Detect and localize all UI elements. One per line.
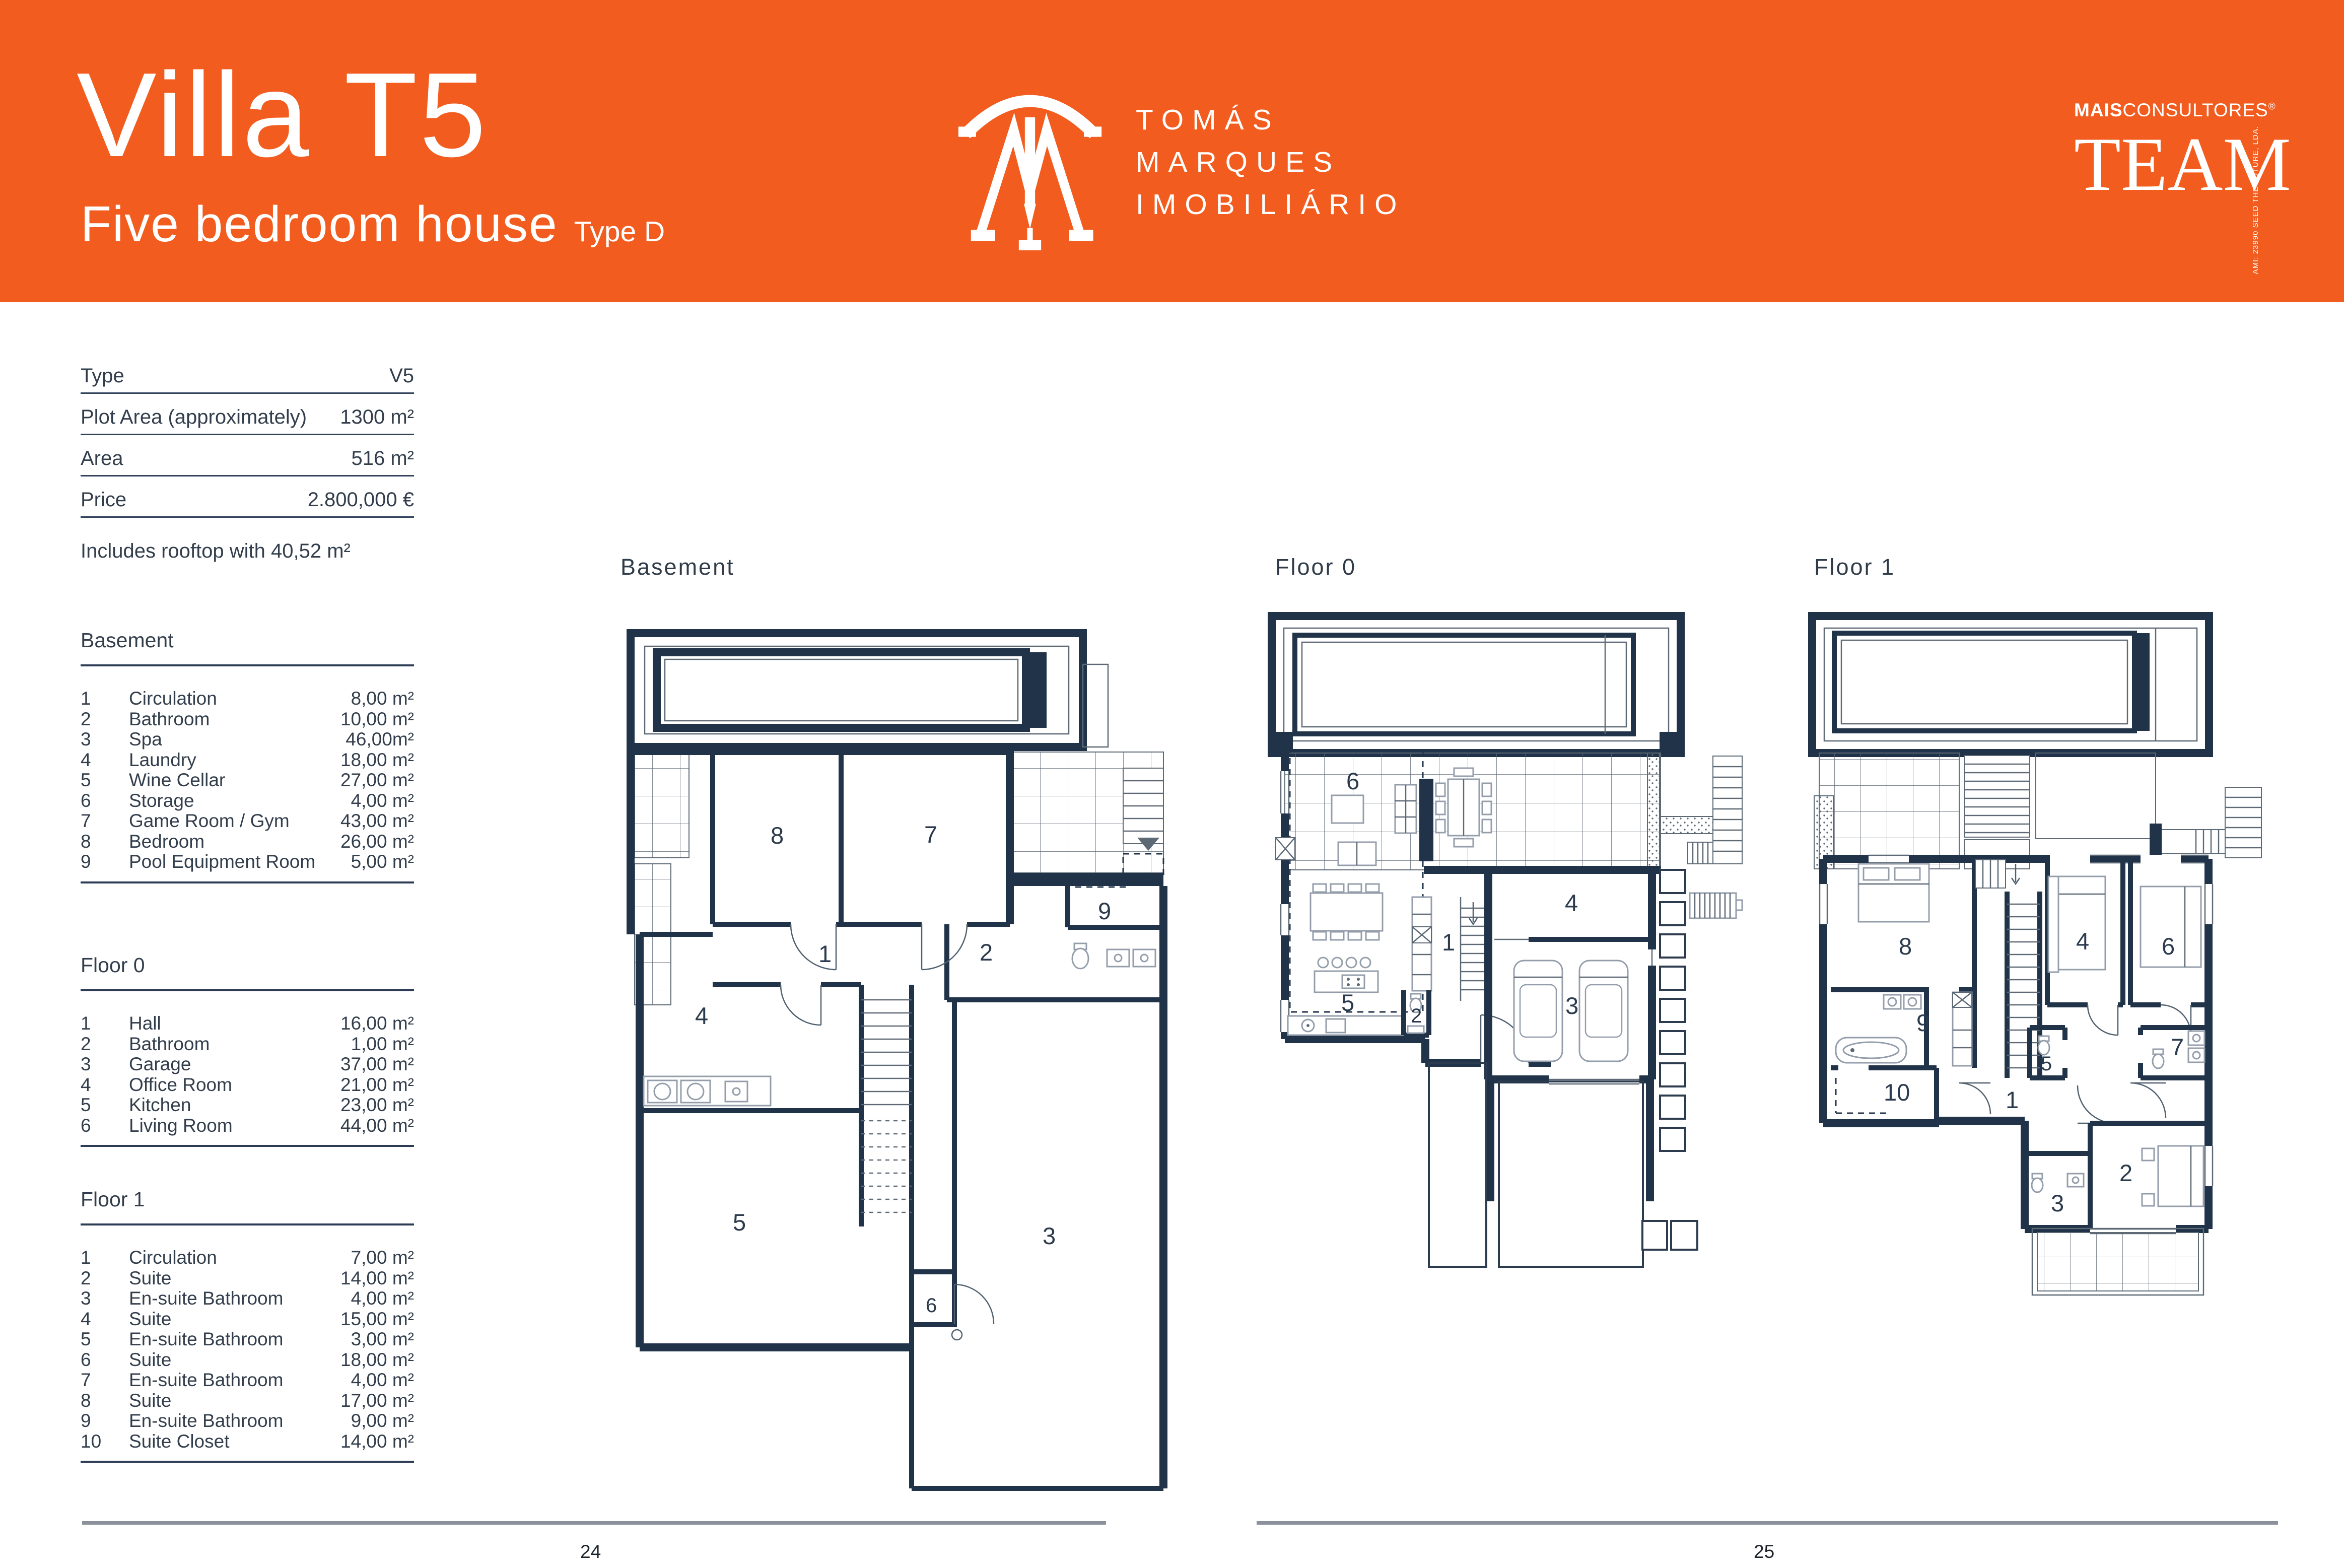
bathroom-fixtures bbox=[1072, 943, 1155, 969]
room-number: 1 bbox=[81, 1013, 129, 1034]
info-label: Type bbox=[81, 365, 124, 387]
room-row: 4Suite15,00 m² bbox=[81, 1309, 414, 1330]
room-name: En-suite Bathroom bbox=[129, 1329, 351, 1350]
floor1-room-list: Floor 1 1Circulation7,00 m² 2Suite14,00 … bbox=[81, 1188, 414, 1463]
property-info-table: Type V5 Plot Area (approximately) 1300 m… bbox=[81, 353, 414, 518]
section-title: Floor 0 bbox=[81, 953, 414, 977]
room-name: Circulation bbox=[129, 1248, 351, 1268]
room-row: 4Laundry18,00 m² bbox=[81, 750, 414, 771]
room-number: 7 bbox=[81, 1370, 129, 1391]
room-number: 7 bbox=[81, 811, 129, 832]
bathroom-3 bbox=[2025, 1153, 2090, 1192]
room-label-gameroom: 7 bbox=[924, 821, 937, 848]
room-label-bathroom: 2 bbox=[1411, 1005, 1422, 1027]
room-area: 43,00 m² bbox=[340, 811, 414, 832]
room-row: 1Circulation7,00 m² bbox=[81, 1248, 414, 1268]
room-name: Suite bbox=[129, 1309, 340, 1330]
room-label-circulation1: 1 bbox=[2006, 1086, 2019, 1113]
car bbox=[1514, 961, 1562, 1061]
pantry-column bbox=[1412, 897, 1431, 991]
room-name: Suite bbox=[129, 1350, 340, 1371]
registered-mark: ® bbox=[2268, 102, 2276, 112]
room-name: Storage bbox=[129, 791, 351, 811]
basement-plan-title: Basement bbox=[621, 554, 735, 580]
car bbox=[1579, 961, 1628, 1061]
room-row: 6Storage4,00 m² bbox=[81, 791, 414, 811]
room-name: Bathroom bbox=[129, 709, 340, 730]
room-name: Kitchen bbox=[129, 1095, 340, 1116]
room-label-storage: 6 bbox=[926, 1294, 937, 1317]
floor0-floor-plan: 6 5 2 1 4 3 bbox=[1267, 602, 1748, 1269]
room-area: 4,00 m² bbox=[351, 1370, 414, 1391]
room-area: 26,00 m² bbox=[340, 832, 414, 852]
room-area: 21,00 m² bbox=[340, 1075, 414, 1096]
brand-name: TOMÁS MARQUES IMOBILIÁRIO bbox=[1136, 75, 1405, 258]
room-name: Spa bbox=[129, 729, 346, 750]
room-number: 4 bbox=[81, 750, 129, 771]
room-label-bath7: 7 bbox=[2171, 1034, 2184, 1060]
room-number: 3 bbox=[81, 729, 129, 750]
storage-room bbox=[912, 1272, 994, 1340]
floor0-room-list: Floor 0 1Hall16,00 m² 2Bathroom1,00 m² 3… bbox=[81, 953, 414, 1147]
room-name: En-suite Bathroom bbox=[129, 1370, 351, 1391]
kitchen-counter bbox=[1288, 1016, 1404, 1035]
floor0-plan-title: Floor 0 bbox=[1275, 554, 1356, 580]
room-name: Office Room bbox=[129, 1075, 340, 1096]
room-area: 9,00 m² bbox=[351, 1411, 414, 1431]
room-label-closet10: 10 bbox=[1884, 1079, 1910, 1106]
room-name: Pool Equipment Room bbox=[129, 852, 351, 872]
room-area: 4,00 m² bbox=[351, 791, 414, 811]
room-area: 16,00 m² bbox=[340, 1013, 414, 1034]
room-name: Bedroom bbox=[129, 832, 340, 852]
roof-terrace bbox=[1814, 753, 2156, 869]
room-number: 9 bbox=[81, 1411, 129, 1431]
team-logo-bold: MAIS bbox=[2074, 100, 2123, 120]
room-label-suite4: 4 bbox=[2076, 928, 2089, 955]
wardrobe-strip bbox=[1953, 992, 1972, 1066]
room-number: 8 bbox=[81, 1391, 129, 1411]
room-name: Circulation bbox=[129, 689, 351, 709]
room-area: 5,00 m² bbox=[351, 852, 414, 872]
exterior-stairs bbox=[1661, 756, 1742, 864]
room-label-office: 4 bbox=[1565, 890, 1578, 916]
room-name: En-suite Bathroom bbox=[129, 1288, 351, 1309]
room-name: Bathroom bbox=[129, 1034, 351, 1055]
room-row: 2Bathroom10,00 m² bbox=[81, 709, 414, 730]
room-name: Suite bbox=[129, 1268, 340, 1289]
room-row: 2Suite14,00 m² bbox=[81, 1268, 414, 1289]
room-number: 3 bbox=[81, 1054, 129, 1075]
brand-logo: TOMÁS MARQUES IMOBILIÁRIO bbox=[954, 75, 1405, 258]
info-value: V5 bbox=[389, 365, 414, 387]
room-label-laundry: 4 bbox=[695, 1002, 708, 1029]
room-number: 9 bbox=[81, 852, 129, 872]
room-label-poolequipment: 9 bbox=[1098, 898, 1111, 924]
room-area: 18,00 m² bbox=[340, 1350, 414, 1371]
divider bbox=[81, 1223, 414, 1225]
exterior-stairs bbox=[2150, 787, 2261, 858]
room-area: 7,00 m² bbox=[351, 1248, 414, 1268]
room-area: 1,00 m² bbox=[351, 1034, 414, 1055]
divider bbox=[81, 664, 414, 666]
room-number: 5 bbox=[81, 770, 129, 791]
room-row: 5Kitchen23,00 m² bbox=[81, 1095, 414, 1116]
room-name: Suite Closet bbox=[129, 1431, 340, 1452]
basement-floor-plan: 8 7 9 1 2 4 5 6 3 bbox=[625, 602, 1179, 1496]
divider bbox=[81, 1461, 414, 1463]
room-label-bath3: 3 bbox=[2051, 1190, 2064, 1216]
team-logo: MAISCONSULTORES® TEAM AMI: 23990 SEED TH… bbox=[2074, 100, 2276, 202]
room-number: 2 bbox=[81, 709, 129, 730]
door-arcs bbox=[781, 924, 967, 1025]
room-name: Wine Cellar bbox=[129, 770, 340, 791]
info-label: Plot Area (approximately) bbox=[81, 406, 307, 429]
room-number: 5 bbox=[81, 1095, 129, 1116]
room-area: 15,00 m² bbox=[340, 1309, 414, 1330]
floor1-plan-title: Floor 1 bbox=[1814, 554, 1895, 580]
room-name: Suite bbox=[129, 1391, 340, 1411]
page-title: Villa T5 bbox=[77, 55, 488, 175]
section-title: Basement bbox=[81, 629, 414, 652]
room-number: 2 bbox=[81, 1034, 129, 1055]
room-label-circulation: 1 bbox=[818, 940, 832, 967]
room-label-garage: 3 bbox=[1565, 992, 1578, 1019]
pergola bbox=[1964, 756, 2030, 869]
info-label: Price bbox=[81, 489, 126, 511]
page-subtitle-row: Five bedroom house Type D bbox=[81, 195, 665, 253]
room-area: 18,00 m² bbox=[340, 750, 414, 771]
dining-table bbox=[1311, 884, 1383, 940]
pool-deck bbox=[631, 633, 1108, 747]
basement-room-list: Basement 1Circulation8,00 m² 2Bathroom10… bbox=[81, 629, 414, 883]
room-row: 2Bathroom1,00 m² bbox=[81, 1034, 414, 1055]
info-row-price: Price 2.800,000 € bbox=[81, 476, 414, 518]
room-row: 5En-suite Bathroom3,00 m² bbox=[81, 1329, 414, 1350]
room-row: 8Suite17,00 m² bbox=[81, 1391, 414, 1411]
room-name: Garage bbox=[129, 1054, 340, 1075]
room-row: 3Garage37,00 m² bbox=[81, 1054, 414, 1075]
room-name: En-suite Bathroom bbox=[129, 1411, 351, 1431]
room-area: 4,00 m² bbox=[351, 1288, 414, 1309]
pool-deck bbox=[1272, 616, 1681, 753]
room-row: 8Bedroom26,00 m² bbox=[81, 832, 414, 852]
room-area: 8,00 m² bbox=[351, 689, 414, 709]
room-row: 10Suite Closet14,00 m² bbox=[81, 1431, 414, 1452]
info-value: 1300 m² bbox=[340, 406, 414, 429]
room-label-bath5: 5 bbox=[2041, 1053, 2052, 1075]
room-number: 6 bbox=[81, 791, 129, 811]
divider bbox=[81, 881, 414, 883]
team-logo-name: TEAM bbox=[2074, 126, 2276, 202]
room-row: 1Circulation8,00 m² bbox=[81, 689, 414, 709]
room-area: 27,00 m² bbox=[340, 770, 414, 791]
room-area: 3,00 m² bbox=[351, 1329, 414, 1350]
room-label-hall: 1 bbox=[1442, 929, 1455, 956]
info-value: 516 m² bbox=[352, 447, 415, 470]
room-label-suite8: 8 bbox=[1899, 933, 1912, 960]
room-row: 7En-suite Bathroom4,00 m² bbox=[81, 1370, 414, 1391]
divider bbox=[81, 1145, 414, 1147]
room-label-bath9: 9 bbox=[1916, 1009, 1929, 1036]
room-name: Living Room bbox=[129, 1116, 340, 1136]
brand-name-line3: IMOBILIÁRIO bbox=[1136, 183, 1405, 226]
room-number: 1 bbox=[81, 689, 129, 709]
room-row: 9Pool Equipment Room5,00 m² bbox=[81, 852, 414, 872]
room-row: 6Living Room44,00 m² bbox=[81, 1116, 414, 1136]
room-label-winecellar: 5 bbox=[733, 1209, 746, 1236]
room-label-livingroom: 6 bbox=[1346, 768, 1359, 794]
room-area: 14,00 m² bbox=[340, 1431, 414, 1452]
room-label-suite2: 2 bbox=[2119, 1160, 2132, 1186]
rooftop-note: Includes rooftop with 40,52 m² bbox=[81, 540, 351, 563]
room-label-suite6: 6 bbox=[2162, 933, 2175, 960]
bottom-terrace bbox=[2032, 1229, 2203, 1295]
room-number: 1 bbox=[81, 1248, 129, 1268]
team-logo-rest: CONSULTORES bbox=[2123, 100, 2268, 120]
room-name: Laundry bbox=[129, 750, 340, 771]
room-number: 3 bbox=[81, 1288, 129, 1309]
room-area: 10,00 m² bbox=[340, 709, 414, 730]
kitchen-island bbox=[1315, 958, 1378, 992]
room-label-spa: 3 bbox=[1043, 1222, 1056, 1249]
tm-monogram-icon bbox=[954, 75, 1106, 258]
room-number: 4 bbox=[81, 1309, 129, 1330]
room-number: 2 bbox=[81, 1268, 129, 1289]
section-title: Floor 1 bbox=[81, 1188, 414, 1211]
room-number: 8 bbox=[81, 832, 129, 852]
room-name: Hall bbox=[129, 1013, 340, 1034]
room-row: 1Hall16,00 m² bbox=[81, 1013, 414, 1034]
room-row: 4Office Room21,00 m² bbox=[81, 1075, 414, 1096]
suite-2 bbox=[2090, 1123, 2209, 1229]
room-area: 44,00 m² bbox=[340, 1116, 414, 1136]
interior-stairs bbox=[861, 985, 912, 1226]
info-value: 2.800,000 € bbox=[308, 489, 414, 511]
room-number: 6 bbox=[81, 1116, 129, 1136]
pool-deck bbox=[1812, 616, 2209, 753]
room-number: 5 bbox=[81, 1329, 129, 1350]
room-number: 10 bbox=[81, 1431, 129, 1452]
room-area: 17,00 m² bbox=[340, 1391, 414, 1411]
room-label-kitchen: 5 bbox=[1341, 989, 1354, 1016]
info-row-type: Type V5 bbox=[81, 353, 414, 394]
room-label-bathroom: 2 bbox=[980, 939, 993, 966]
room-row: 5Wine Cellar27,00 m² bbox=[81, 770, 414, 791]
header-banner: Villa T5 Five bedroom house Type D bbox=[0, 0, 2344, 302]
room-area: 46,00m² bbox=[346, 729, 414, 750]
footer-rule-left bbox=[82, 1521, 1106, 1525]
page-subtitle: Five bedroom house bbox=[81, 195, 558, 253]
room-area: 14,00 m² bbox=[340, 1268, 414, 1289]
laundry-counter bbox=[644, 1076, 771, 1106]
team-logo-wordmark: MAISCONSULTORES® bbox=[2074, 100, 2276, 121]
brand-name-line1: TOMÁS bbox=[1136, 99, 1405, 141]
page-number-right: 25 bbox=[1754, 1541, 1774, 1562]
footer-rule-right bbox=[1257, 1521, 2278, 1525]
room-number: 4 bbox=[81, 1075, 129, 1096]
room-area: 37,00 m² bbox=[340, 1054, 414, 1075]
room-row: 3Spa46,00m² bbox=[81, 729, 414, 750]
info-row-plot-area: Plot Area (approximately) 1300 m² bbox=[81, 394, 414, 435]
room-area: 23,00 m² bbox=[340, 1095, 414, 1116]
pool-equipment-room bbox=[1068, 886, 1163, 927]
team-logo-side-text: AMI: 23990 SEED THE FUTURE, LDA. bbox=[2251, 126, 2260, 274]
office-and-garage bbox=[1488, 870, 1652, 1201]
info-label: Area bbox=[81, 447, 123, 470]
info-row-area: Area 516 m² bbox=[81, 435, 414, 476]
type-label: Type D bbox=[574, 215, 665, 248]
bbq bbox=[1690, 893, 1742, 918]
right-tile-terrace bbox=[1010, 752, 1163, 886]
room-row: 7Game Room / Gym43,00 m² bbox=[81, 811, 414, 832]
room-label-bedroom: 8 bbox=[771, 822, 784, 849]
room-number: 6 bbox=[81, 1350, 129, 1371]
room-row: 9En-suite Bathroom9,00 m² bbox=[81, 1411, 414, 1431]
divider bbox=[81, 989, 414, 991]
brand-name-line2: MARQUES bbox=[1136, 141, 1405, 183]
page-number-left: 24 bbox=[580, 1541, 601, 1562]
room-row: 6Suite18,00 m² bbox=[81, 1350, 414, 1371]
driveway bbox=[1429, 1063, 1643, 1267]
room-name: Game Room / Gym bbox=[129, 811, 340, 832]
room-row: 3En-suite Bathroom4,00 m² bbox=[81, 1288, 414, 1309]
floor1-floor-plan: 8 9 10 4 6 5 7 1 2 3 bbox=[1808, 602, 2266, 1297]
